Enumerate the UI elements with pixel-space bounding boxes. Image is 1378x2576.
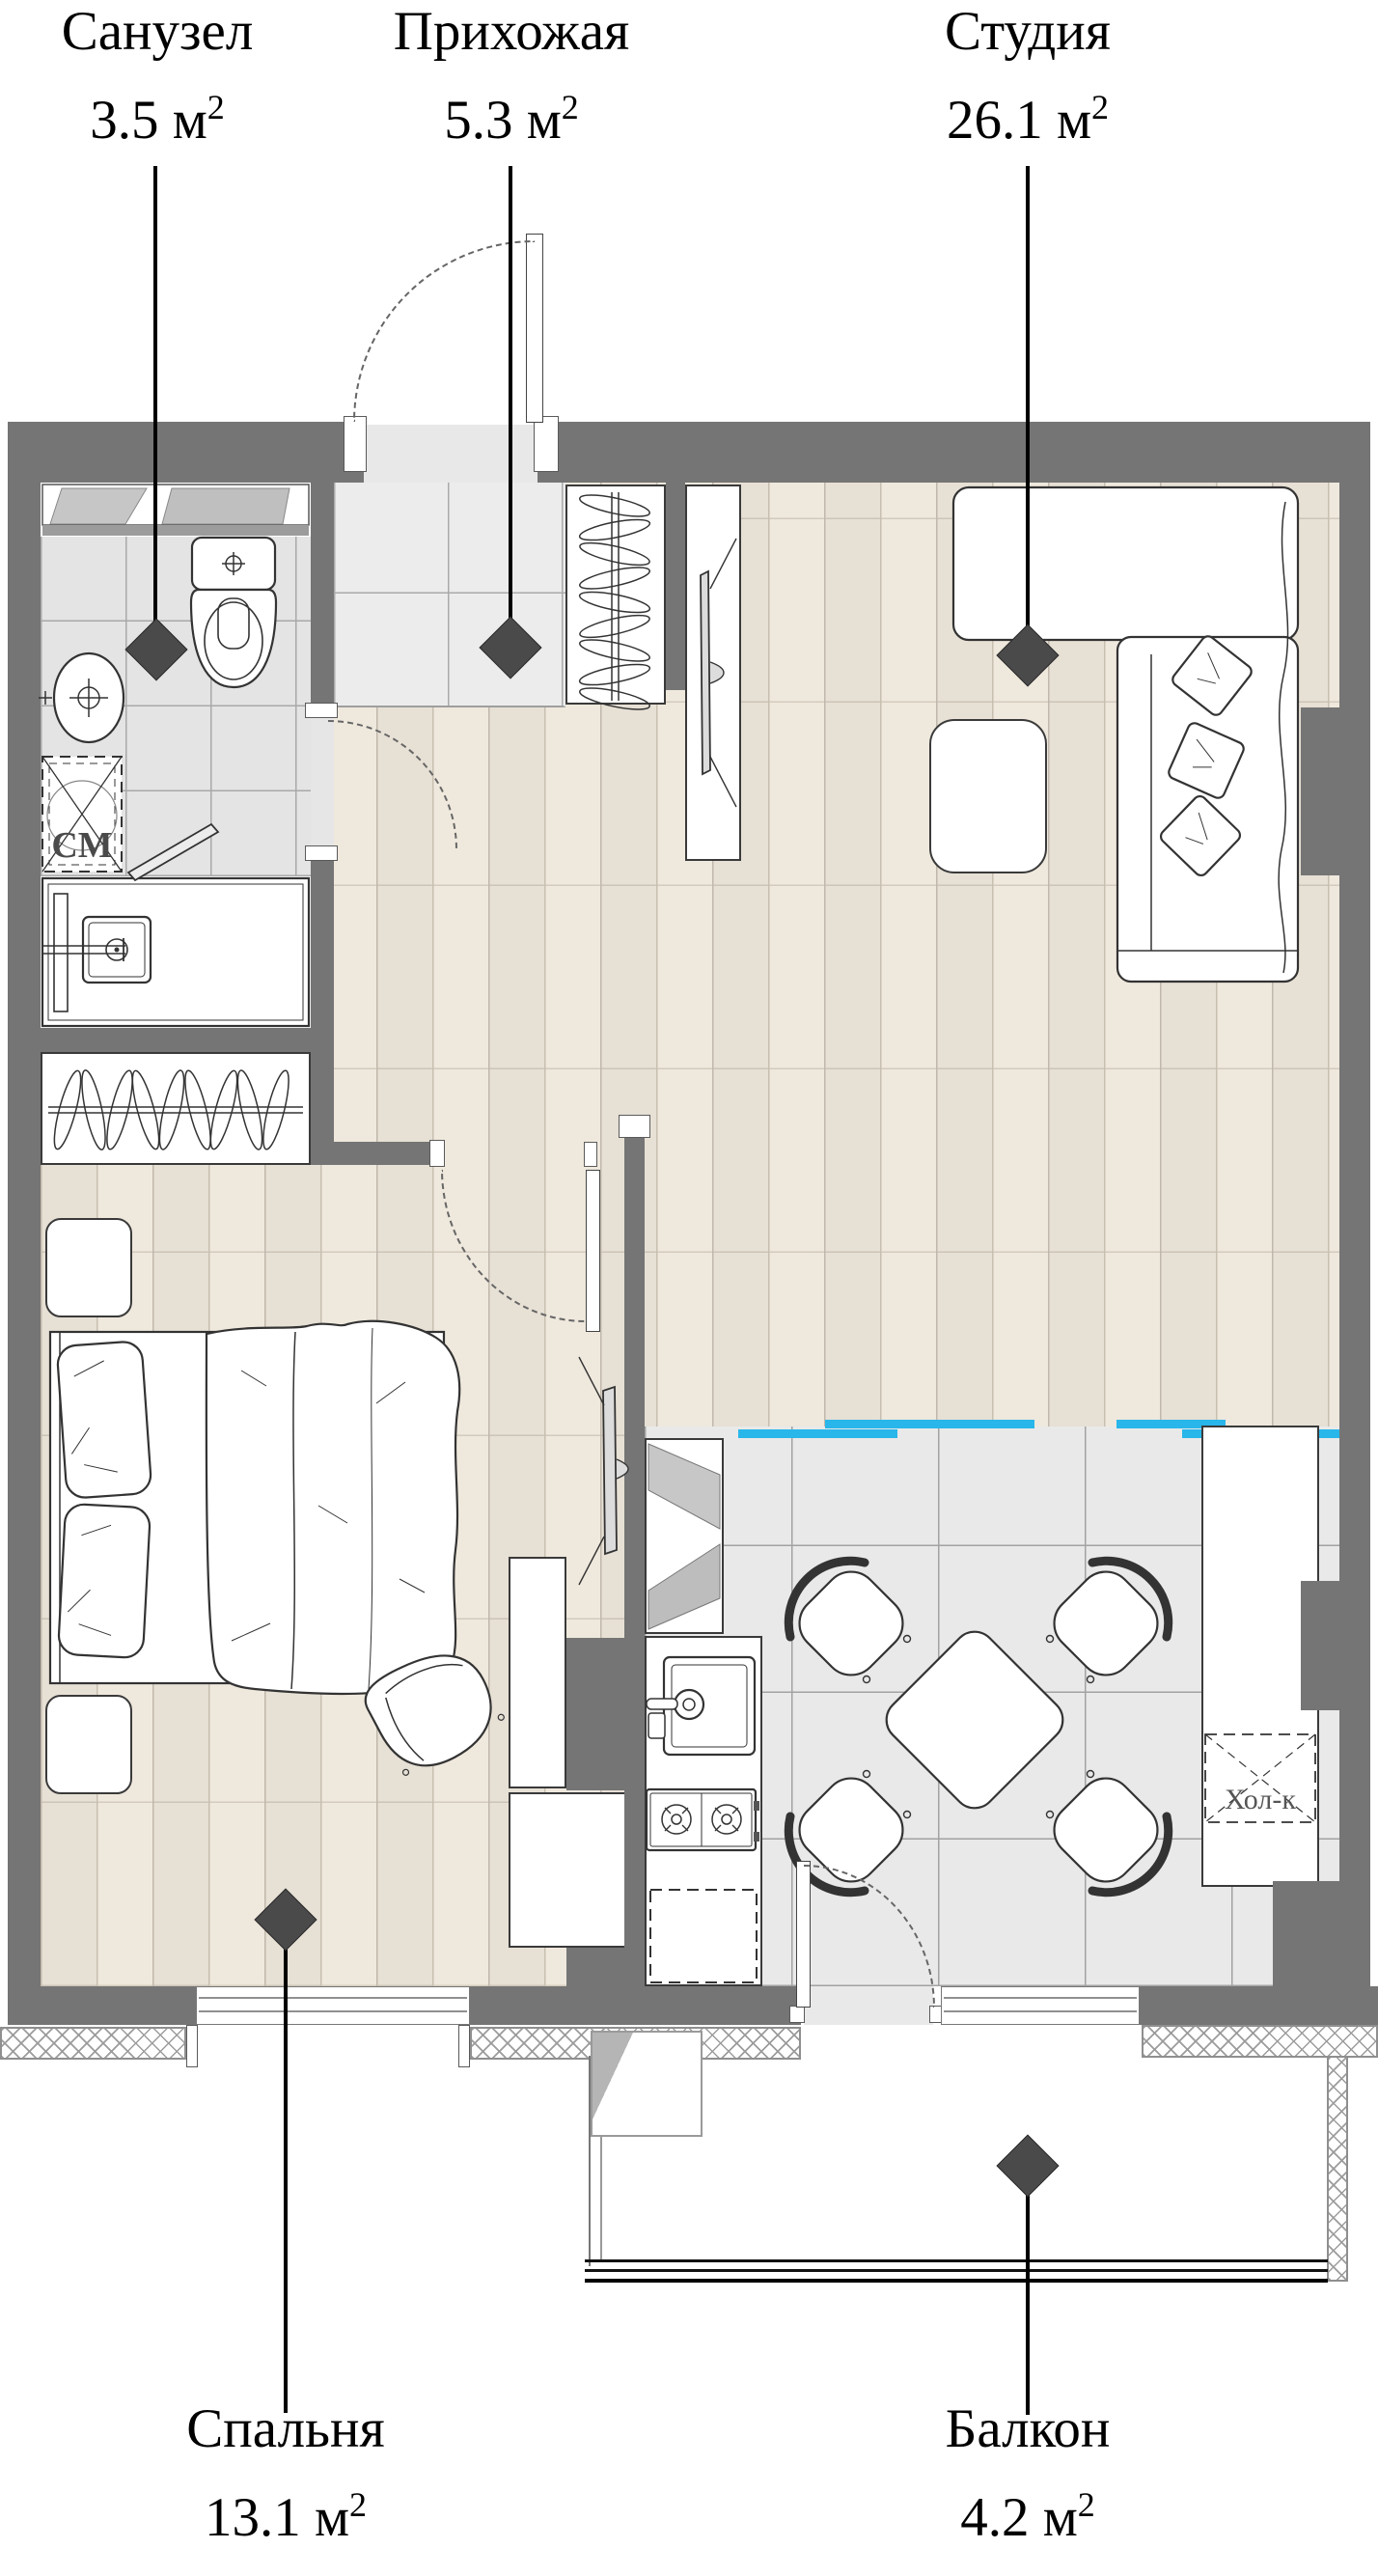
wall-bedroom-kitchen xyxy=(624,1117,645,2025)
hallway-floor-edge xyxy=(334,706,564,707)
leader-bathroom xyxy=(153,166,157,632)
entry-door-swing xyxy=(353,240,535,422)
window-frame-line xyxy=(199,2010,467,2012)
room-name: Санузел xyxy=(0,2,331,62)
wall-bottom-2 xyxy=(470,1986,569,2025)
kitchen-window xyxy=(941,1986,1140,2025)
leader-hallway xyxy=(509,166,512,629)
bedroom-dresser xyxy=(509,1557,566,1788)
label-bedroom: Спальня 13.1 м2 xyxy=(112,2399,459,2548)
label-hallway: Прихожая 5.3 м2 xyxy=(338,2,685,151)
leader-bedroom xyxy=(284,1921,288,2413)
room-name: Балкон xyxy=(854,2399,1201,2459)
wall-bottom-1 xyxy=(8,1986,196,2025)
balcony-jamb-left xyxy=(789,2006,805,2023)
bedroom-window xyxy=(196,1986,470,2025)
window-frame-line xyxy=(944,2010,1137,2012)
bedroom-door-leaf xyxy=(586,1170,600,1332)
hatch-cap xyxy=(458,2025,470,2067)
wall-corridor-bedroom xyxy=(334,1142,441,1165)
wall-right xyxy=(1339,483,1370,1986)
coffee-table xyxy=(929,719,1047,873)
tv-cabinet-studio xyxy=(685,485,741,861)
column-kitchen xyxy=(1301,1581,1339,1710)
label-balcony: Балкон 4.2 м2 xyxy=(854,2399,1201,2548)
leader-balcony xyxy=(1026,2166,1030,2415)
wall-closet-east xyxy=(666,483,685,690)
leader-studio xyxy=(1026,166,1030,637)
room-area: 13.1 м2 xyxy=(112,2475,459,2548)
room-name: Прихожая xyxy=(338,2,685,62)
entry-jamb-right xyxy=(534,416,559,472)
room-name: Студия xyxy=(854,2,1201,62)
room-area: 5.3 м2 xyxy=(338,77,685,151)
floor-plan: Санузел 3.5 м2 Прихожая 5.3 м2 Студия 26… xyxy=(0,0,1378,2576)
column-corner xyxy=(1273,1881,1339,1986)
balcony-rail-line xyxy=(585,2259,1328,2262)
room-area: 3.5 м2 xyxy=(0,77,331,151)
nightstand-bottom xyxy=(45,1695,132,1794)
wall-pilaster xyxy=(566,1638,645,1790)
room-name: Спальня xyxy=(112,2399,459,2459)
window-frame-line xyxy=(944,1997,1137,1999)
hatch-band-right xyxy=(1142,2025,1378,2058)
wardrobe xyxy=(41,1052,311,1165)
kitchen-tall-cabinet xyxy=(645,1438,724,1634)
kitchen-wall-cap xyxy=(619,1115,650,1138)
wall-shower-band xyxy=(41,1028,334,1052)
bedroom-cabinet xyxy=(509,1792,634,1948)
zone-line-segment xyxy=(738,1429,897,1438)
wall-top-right xyxy=(537,422,1370,483)
bath-jamb-top xyxy=(305,703,338,718)
nightstand-top xyxy=(45,1218,132,1317)
kitchen-counter-left xyxy=(645,1636,762,1986)
wall-bottom-chunk xyxy=(566,1948,645,2025)
wall-bottom-3 xyxy=(645,1986,801,2025)
hatch-balcony-east xyxy=(1327,2056,1348,2282)
zone-line-segment xyxy=(825,1420,1034,1428)
marker-balcony xyxy=(996,2134,1059,2197)
label-studio: Студия 26.1 м2 xyxy=(854,2,1201,151)
balcony-rail-line xyxy=(585,2269,1328,2272)
washer-label: СМ xyxy=(41,824,124,867)
bedroom-jamb-left xyxy=(429,1140,445,1167)
window-frame-line xyxy=(199,1997,467,1999)
balcony-rail-outer xyxy=(585,2279,1328,2283)
hatch-band-left xyxy=(0,2027,186,2060)
balcony-window-panel xyxy=(591,2031,703,2137)
entry-closet xyxy=(565,485,666,705)
entry-jamb-left xyxy=(344,416,367,472)
room-area: 26.1 м2 xyxy=(854,77,1201,151)
hatch-cap xyxy=(186,2025,198,2067)
hallway-tile-floor xyxy=(334,483,565,707)
room-area: 4.2 м2 xyxy=(854,2475,1201,2548)
column-studio xyxy=(1301,707,1339,875)
wall-top-left xyxy=(8,422,364,483)
label-bathroom: Санузел 3.5 м2 xyxy=(0,2,331,151)
wall-left xyxy=(8,483,41,2025)
bedroom-jamb-right xyxy=(584,1142,597,1167)
wall-bottom-4 xyxy=(1140,1986,1378,2025)
fridge-label: Хол-к xyxy=(1201,1784,1319,1816)
